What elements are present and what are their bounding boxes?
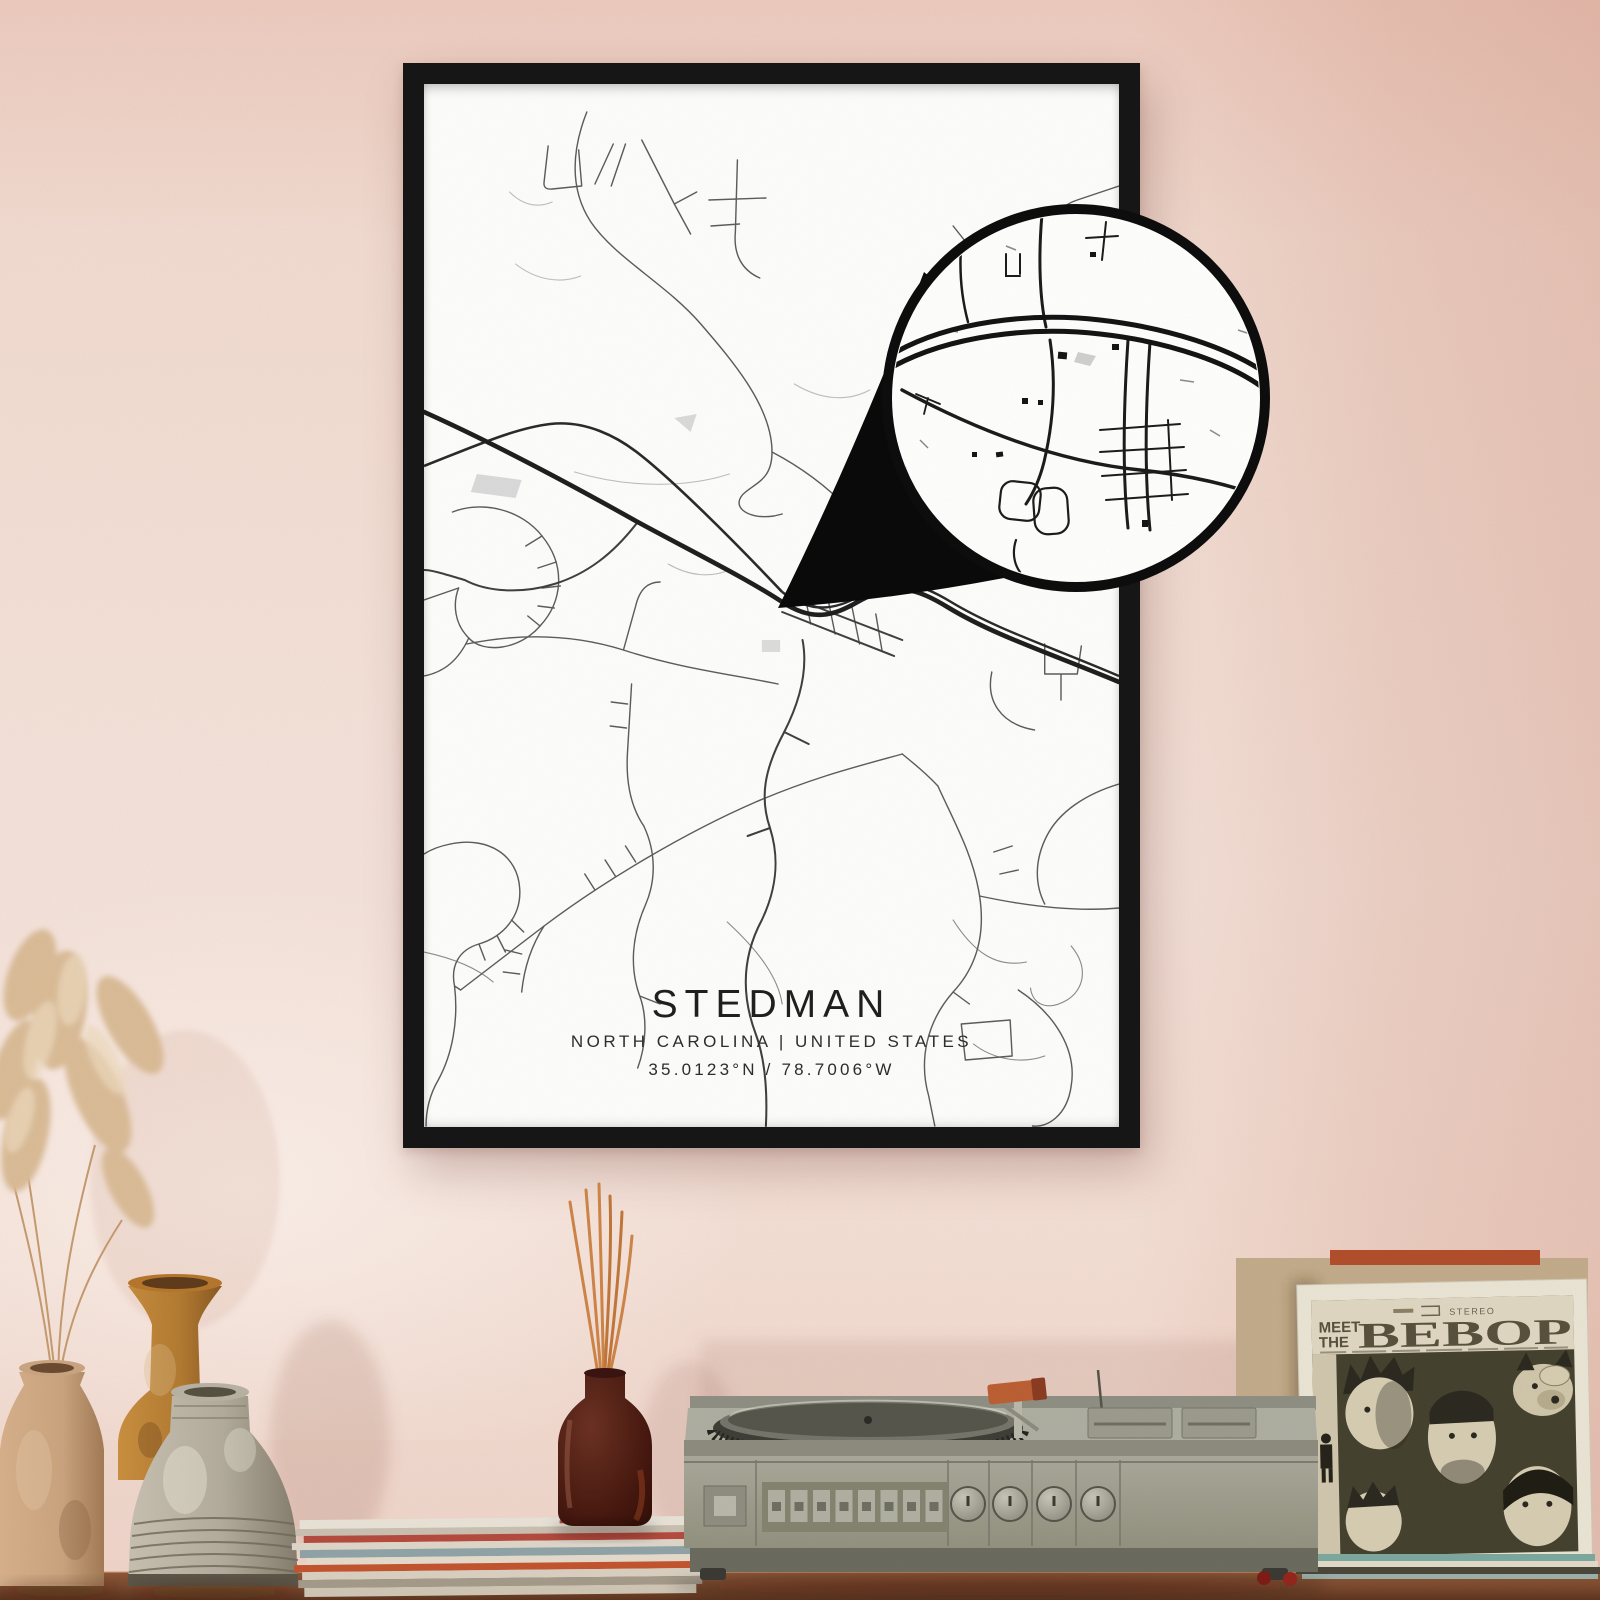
turntable-foot <box>700 1568 726 1580</box>
preset-button <box>903 1490 920 1522</box>
magazine-layer <box>300 1546 702 1558</box>
magazine-layer <box>300 1516 700 1529</box>
knob <box>1037 1487 1071 1521</box>
preset-button <box>791 1490 808 1522</box>
antenna <box>1098 1370 1102 1412</box>
poster-frame: STEDMAN NORTH CAROLINA | UNITED STATES 3… <box>403 63 1140 1148</box>
magazine-layer <box>294 1561 702 1572</box>
control-knobs <box>951 1487 1115 1521</box>
wall-right-shade <box>1130 0 1600 1600</box>
magazine-layer <box>304 1584 696 1597</box>
poster-paper: STEDMAN NORTH CAROLINA | UNITED STATES 3… <box>424 84 1119 1127</box>
magazine-layer <box>306 1554 696 1565</box>
poster-title: STEDMAN <box>424 983 1119 1027</box>
map-railroad <box>424 423 782 592</box>
knob <box>951 1487 985 1521</box>
preset-button-panel <box>762 1482 948 1532</box>
preset-button <box>768 1490 785 1522</box>
magazine-layer <box>298 1576 702 1588</box>
preset-button <box>881 1490 898 1522</box>
magazine-stack <box>292 1516 703 1597</box>
preset-button <box>926 1490 943 1522</box>
magazine-layer <box>304 1532 700 1543</box>
tonearm <box>987 1377 1047 1438</box>
preset-button <box>836 1490 853 1522</box>
magazine-layer <box>296 1525 702 1536</box>
preset-button <box>813 1490 830 1522</box>
poster-coordinates: 35.0123°N / 78.7006°W <box>424 1060 1119 1080</box>
preset-button <box>858 1490 875 1522</box>
preset-buttons <box>768 1490 943 1522</box>
map-minor-paths <box>509 192 1065 575</box>
map-landuse-patch <box>471 414 780 652</box>
knob <box>1081 1487 1115 1521</box>
knob <box>993 1487 1027 1521</box>
power-button <box>704 1486 746 1526</box>
city-map <box>424 84 1119 1127</box>
room-scene: STEDMAN NORTH CAROLINA | UNITED STATES 3… <box>0 0 1600 1600</box>
poster-subtitle: NORTH CAROLINA | UNITED STATES <box>424 1032 1119 1052</box>
magazine-layer <box>302 1568 700 1580</box>
magazine-layer <box>292 1539 702 1550</box>
